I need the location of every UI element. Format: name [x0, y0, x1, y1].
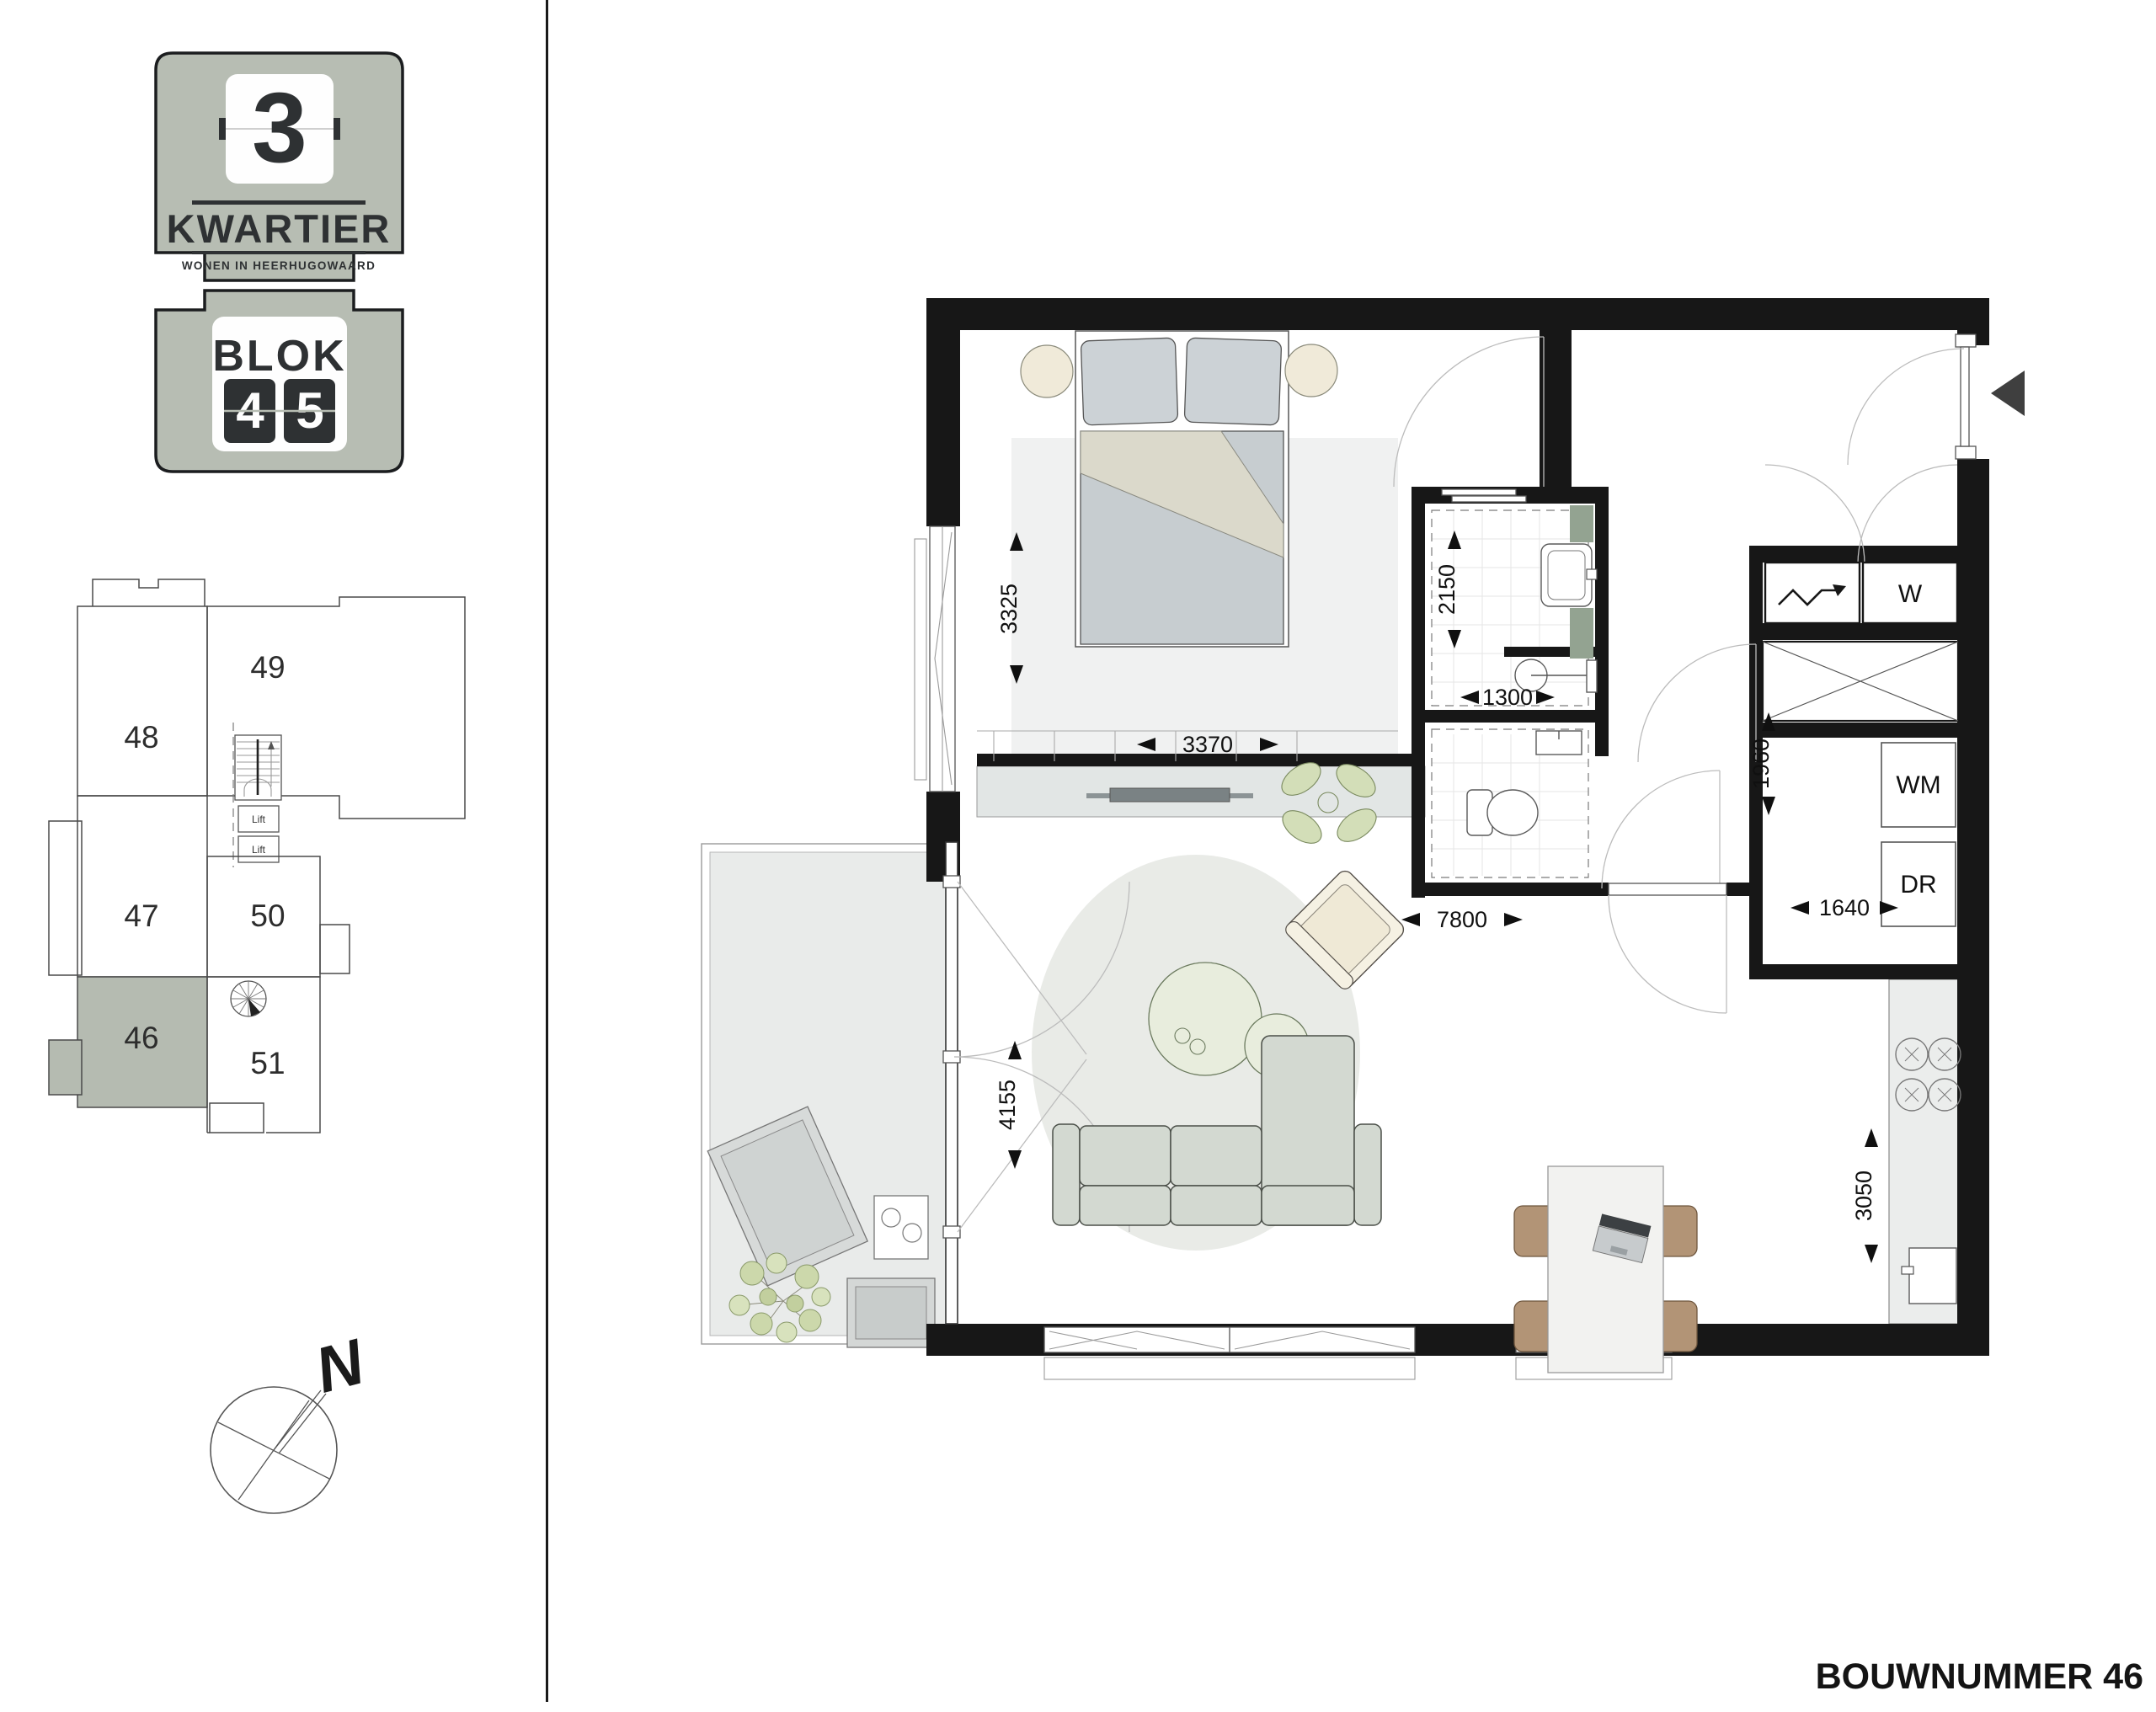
- dryer-label: DR: [1900, 871, 1936, 899]
- tile-strip-bottom: [1570, 608, 1593, 659]
- site-unit-46-balcony: [49, 1040, 82, 1095]
- dim-1300: 1300: [1482, 685, 1533, 710]
- build-number-title: BOUWNUMMER 46: [1816, 1656, 2143, 1697]
- vertical-divider: [546, 0, 548, 1702]
- floorplan-sheet: 3 KWARTIER WONEN IN HEERHUGOWAARD BLOK 4…: [0, 0, 2156, 1712]
- living-room-door-leaf: [1609, 883, 1726, 895]
- tv-on-sideboard: [1086, 788, 1253, 802]
- compass-icon: N: [211, 1325, 373, 1513]
- lift-icon: Lift Lift: [238, 806, 279, 862]
- dim-kitchen-depth: 3050: [1851, 1128, 1878, 1263]
- site-unit-47-label: 47: [124, 899, 158, 933]
- meter-cupboard: W: [1765, 563, 1957, 623]
- stairs-icon: [235, 735, 281, 800]
- site-unit-46-label: 46: [124, 1021, 158, 1055]
- bathroom-door: [1442, 489, 1526, 502]
- dim-living-width: 7800: [1401, 907, 1523, 932]
- logo-block-label: BLOK: [212, 332, 346, 381]
- balcony-table: [874, 1196, 928, 1259]
- dim-living-depth: 4155: [995, 1041, 1022, 1169]
- site-unit-50-balcony: [320, 925, 350, 973]
- tech-room: WM DR: [1881, 743, 1956, 926]
- toilet-fixtures: [1467, 731, 1582, 835]
- kitchen-sink: [1909, 1248, 1956, 1304]
- bedroom-window: [915, 526, 955, 792]
- dim-4155: 4155: [995, 1080, 1020, 1130]
- dim-3370: 3370: [1182, 732, 1233, 757]
- dim-3325: 3325: [996, 584, 1022, 634]
- lift-label-2: Lift: [252, 844, 266, 856]
- bedside-pouf-right: [1285, 344, 1337, 397]
- flip-card-hinge-right: [334, 118, 340, 140]
- flip-card-hinge-left: [219, 118, 226, 140]
- site-plan: Lift Lift 49: [49, 579, 465, 1133]
- project-logo: 3 KWARTIER WONEN IN HEERHUGOWAARD BLOK 4…: [156, 53, 403, 472]
- logo-project-number: 3: [252, 72, 307, 184]
- site-unit-47-outline: [77, 796, 207, 977]
- site-unit-51-label: 51: [250, 1046, 285, 1080]
- site-unit-48-outline: [77, 606, 207, 796]
- logo-project-name: KWARTIER: [167, 206, 392, 251]
- bathroom-fixtures: [1515, 505, 1597, 692]
- dim-2150: 2150: [1434, 564, 1460, 615]
- dining-set: [1514, 1166, 1697, 1373]
- site-unit-50-label: 50: [250, 899, 285, 933]
- site-unit-49-label: 49: [250, 650, 285, 685]
- sink: [1541, 544, 1592, 606]
- tile-strip-top: [1570, 505, 1593, 542]
- site-unit-51-balcony: [210, 1103, 264, 1133]
- logo-tagline: WONEN IN HEERHUGOWAARD: [182, 259, 376, 272]
- dining-table: [1548, 1166, 1663, 1373]
- bed: [1075, 331, 1289, 647]
- balcony-armchair: [847, 1278, 935, 1347]
- shaft: [1763, 642, 1958, 721]
- entry-arrow-icon: [1991, 371, 2025, 416]
- dim-bathroom-depth: 2150: [1434, 531, 1461, 648]
- spiral-stairs-icon: [231, 981, 266, 1016]
- balcony: [702, 844, 954, 1347]
- dim-1960: 1960: [1748, 739, 1774, 789]
- entry-door: [1848, 334, 2025, 465]
- dim-3050: 3050: [1851, 1171, 1876, 1221]
- site-unit-48-label: 48: [124, 720, 158, 755]
- floor-plan: W WM DR: [702, 298, 2025, 1379]
- water-heater-label: W: [1898, 580, 1923, 608]
- washing-machine-label: WM: [1896, 771, 1940, 799]
- bedside-pouf-left: [1021, 345, 1073, 397]
- site-unit-47-balcony: [49, 821, 82, 975]
- site-unit-48-balcony: [93, 579, 205, 606]
- lift-label-1: Lift: [252, 813, 266, 825]
- dim-1640: 1640: [1819, 895, 1870, 920]
- dim-7800: 7800: [1437, 907, 1487, 932]
